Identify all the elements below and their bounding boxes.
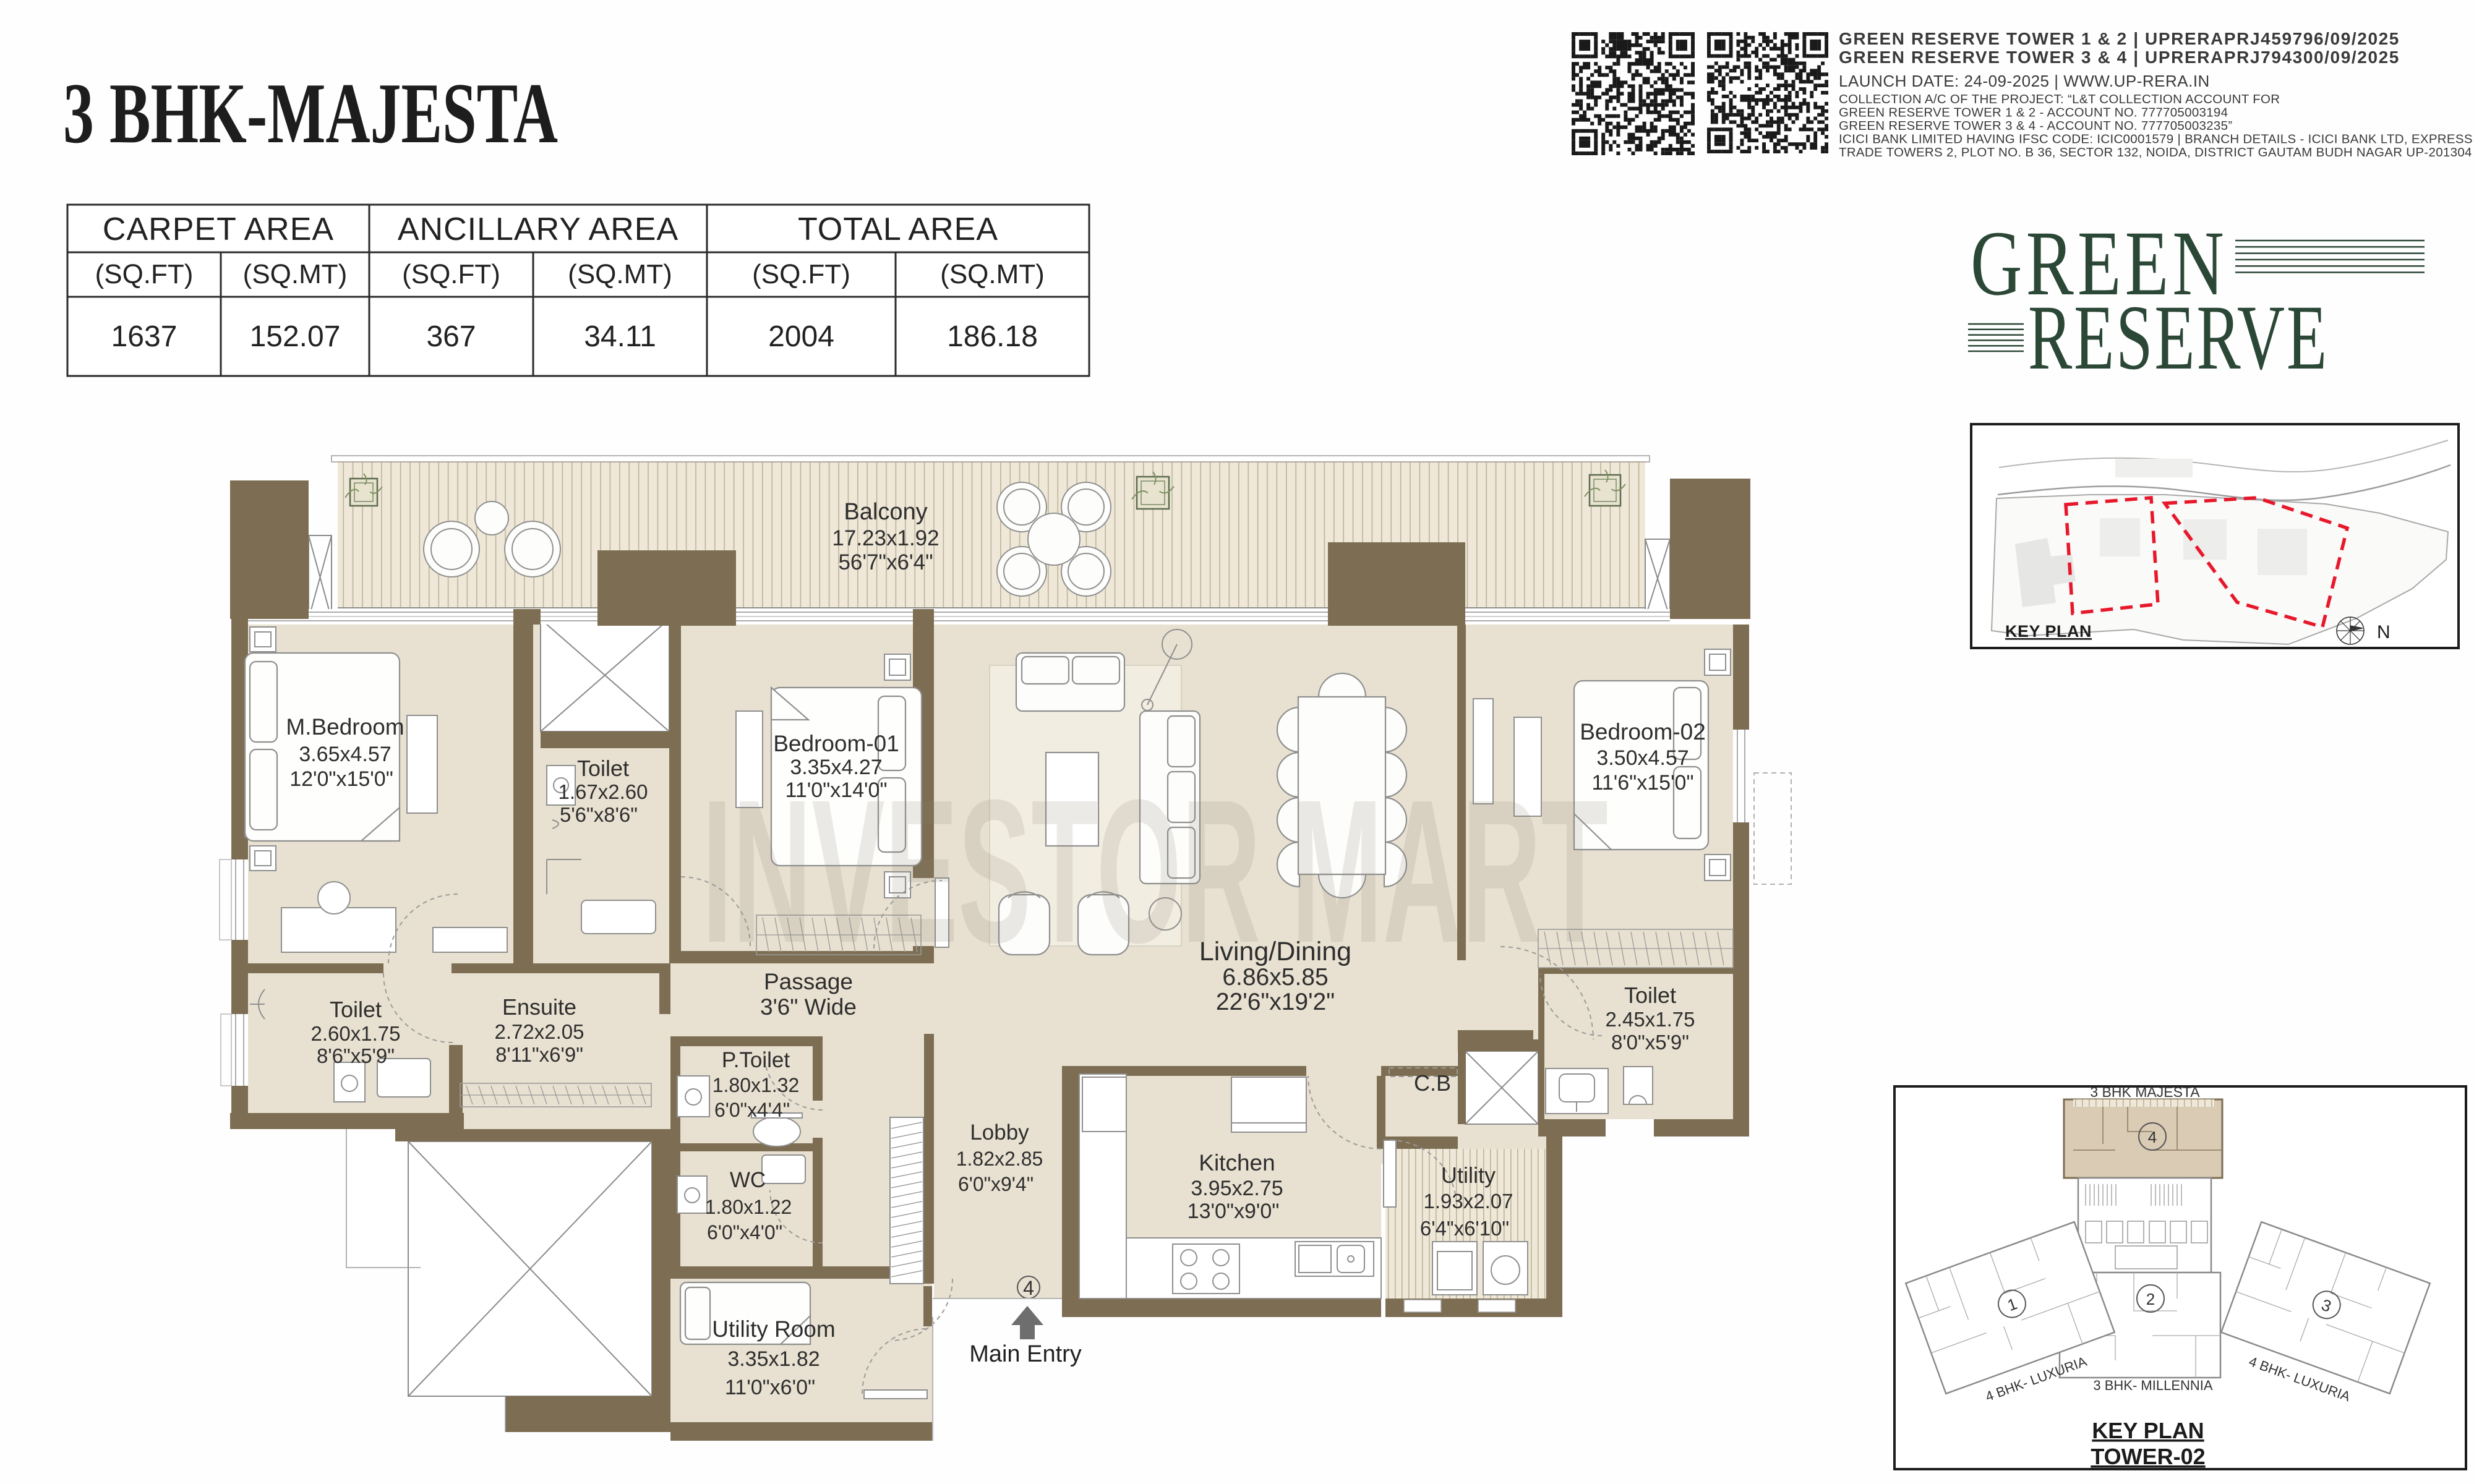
svg-text:6'0"x9'4": 6'0"x9'4" (958, 1173, 1034, 1195)
svg-text:Balcony: Balcony (844, 499, 927, 525)
svg-text:1.67x2.60: 1.67x2.60 (559, 780, 648, 803)
svg-text:34.11: 34.11 (584, 320, 656, 353)
svg-text:11'0"x6'0": 11'0"x6'0" (725, 1376, 815, 1399)
svg-text:KEY PLAN: KEY PLAN (2092, 1418, 2204, 1443)
svg-text:CARPET AREA: CARPET AREA (103, 211, 334, 247)
svg-text:3.65x4.57: 3.65x4.57 (299, 743, 391, 766)
svg-text:Bedroom-01: Bedroom-01 (773, 731, 899, 756)
svg-text:5'6"x8'6": 5'6"x8'6" (560, 803, 638, 826)
svg-text:GREEN RESERVE TOWER 1 & 2 | UP: GREEN RESERVE TOWER 1 & 2 | UPRERAPRJ459… (1839, 29, 2400, 48)
svg-text:Bedroom-02: Bedroom-02 (1580, 719, 1706, 744)
svg-text:C.B: C.B (1414, 1070, 1451, 1096)
svg-text:2: 2 (2146, 1290, 2155, 1308)
svg-text:Utility Room: Utility Room (712, 1316, 835, 1342)
svg-text:TRADE TOWERS 2, PLOT NO. B 36,: TRADE TOWERS 2, PLOT NO. B 36, SECTOR 13… (1839, 145, 2472, 160)
svg-text:186.18: 186.18 (947, 320, 1038, 353)
svg-text:GREEN RESERVE TOWER 3 & 4 - AC: GREEN RESERVE TOWER 3 & 4 - ACCOUNT NO. … (1839, 119, 2232, 133)
svg-text:(SQ.MT): (SQ.MT) (243, 259, 348, 289)
svg-text:Kitchen: Kitchen (1199, 1150, 1275, 1175)
svg-text:8'0"x5'9": 8'0"x5'9" (1611, 1031, 1689, 1054)
svg-text:2.72x2.05: 2.72x2.05 (495, 1020, 584, 1043)
svg-text:Toilet: Toilet (330, 997, 382, 1022)
svg-text:N: N (2377, 622, 2391, 642)
svg-text:367: 367 (426, 320, 476, 353)
svg-text:3'6" Wide: 3'6" Wide (760, 994, 857, 1020)
svg-text:1637: 1637 (111, 320, 178, 353)
svg-text:1.82x2.85: 1.82x2.85 (956, 1148, 1043, 1170)
svg-text:(SQ.FT): (SQ.FT) (95, 259, 194, 289)
svg-text:WC: WC (730, 1168, 766, 1192)
svg-text:3.50x4.57: 3.50x4.57 (1596, 746, 1689, 770)
svg-text:56'7"x6'4": 56'7"x6'4" (838, 550, 933, 574)
svg-text:LAUNCH DATE: 24-09-2025 | WWW.: LAUNCH DATE: 24-09-2025 | WWW.UP-RERA.IN (1839, 72, 2210, 90)
svg-text:COLLECTION A/C OF THE PROJECT:: COLLECTION A/C OF THE PROJECT: “L&T COLL… (1839, 92, 2280, 106)
svg-text:152.07: 152.07 (250, 320, 341, 353)
svg-text:2.60x1.75: 2.60x1.75 (311, 1022, 401, 1045)
svg-text:1.80x1.32: 1.80x1.32 (713, 1074, 800, 1096)
svg-text:3 BHK- MILLENNIA: 3 BHK- MILLENNIA (2093, 1378, 2212, 1393)
svg-text:13'0"x9'0": 13'0"x9'0" (1188, 1200, 1280, 1223)
svg-text:GREEN RESERVE TOWER 1 & 2 - AC: GREEN RESERVE TOWER 1 & 2 - ACCOUNT NO. … (1839, 106, 2228, 120)
svg-text:Main Entry: Main Entry (969, 1341, 1082, 1367)
svg-text:(SQ.MT): (SQ.MT) (940, 259, 1045, 289)
svg-text:4: 4 (1023, 1277, 1034, 1299)
svg-text:8'6"x5'9": 8'6"x5'9" (317, 1044, 395, 1067)
svg-text:Lobby: Lobby (970, 1120, 1029, 1145)
svg-text:P.Toilet: P.Toilet (722, 1048, 790, 1072)
svg-text:12'0"x15'0": 12'0"x15'0" (289, 767, 393, 791)
svg-text:1.80x1.22: 1.80x1.22 (705, 1196, 792, 1218)
svg-text:(SQ.MT): (SQ.MT) (568, 259, 672, 289)
svg-text:TOTAL AREA: TOTAL AREA (798, 211, 998, 247)
svg-text:KEY PLAN: KEY PLAN (2005, 622, 2092, 641)
svg-text:Toilet: Toilet (1624, 983, 1676, 1008)
svg-text:3.95x2.75: 3.95x2.75 (1191, 1177, 1283, 1200)
svg-text:(SQ.FT): (SQ.FT) (752, 259, 850, 289)
svg-text:GREEN RESERVE TOWER 3 & 4 | UP: GREEN RESERVE TOWER 3 & 4 | UPRERAPRJ794… (1839, 48, 2400, 67)
svg-text:TOWER-02: TOWER-02 (2091, 1444, 2205, 1469)
svg-text:2004: 2004 (768, 320, 834, 353)
svg-text:6'0"x4'4": 6'0"x4'4" (714, 1099, 790, 1121)
svg-text:Utility: Utility (1441, 1162, 1496, 1188)
svg-text:1.93x2.07: 1.93x2.07 (1424, 1190, 1513, 1213)
svg-text:INVESTOR MART: INVESTOR MART (702, 757, 1608, 985)
svg-text:M.Bedroom: M.Bedroom (286, 714, 404, 740)
svg-text:6'4"x6'10": 6'4"x6'10" (1420, 1217, 1509, 1240)
svg-text:17.23x1.92: 17.23x1.92 (832, 526, 939, 550)
svg-text:RESERVE: RESERVE (2028, 286, 2329, 389)
svg-text:3 BHK-MAJESTA: 3 BHK-MAJESTA (63, 66, 558, 161)
svg-text:(SQ.FT): (SQ.FT) (402, 259, 500, 289)
svg-text:8'11"x6'9": 8'11"x6'9" (495, 1043, 583, 1066)
svg-text:3.35x1.82: 3.35x1.82 (727, 1347, 820, 1371)
svg-text:6'0"x4'0": 6'0"x4'0" (707, 1221, 782, 1243)
svg-text:ANCILLARY AREA: ANCILLARY AREA (398, 211, 678, 247)
svg-text:2.45x1.75: 2.45x1.75 (1606, 1008, 1695, 1031)
svg-text:3 BHK MAJESTA: 3 BHK MAJESTA (2090, 1084, 2200, 1100)
svg-text:ICICI BANK LIMITED HAVING IFSC: ICICI BANK LIMITED HAVING IFSC CODE: ICI… (1839, 132, 2473, 147)
svg-text:22'6"x19'2": 22'6"x19'2" (1216, 989, 1335, 1015)
svg-text:Ensuite: Ensuite (502, 994, 576, 1020)
svg-text:4: 4 (2148, 1128, 2157, 1146)
svg-text:Toilet: Toilet (577, 756, 629, 781)
